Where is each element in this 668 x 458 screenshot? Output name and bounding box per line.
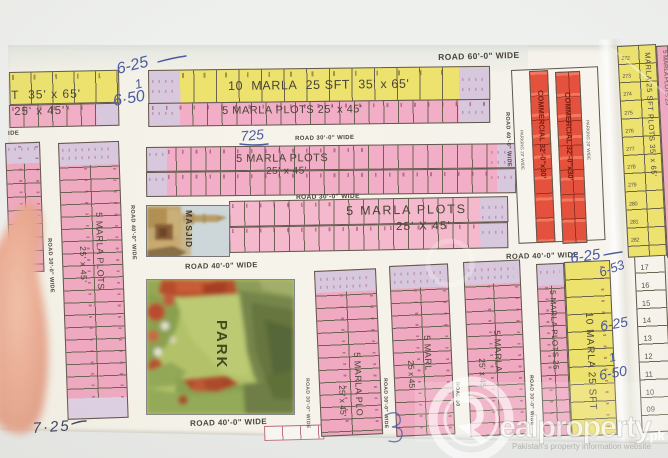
svg-text:ealproperty: ealproperty <box>499 409 653 444</box>
svg-text:Pakistan's property informat: Pakistan's property information website <box>512 442 651 451</box>
svg-text:.pk: .pk <box>646 428 666 443</box>
